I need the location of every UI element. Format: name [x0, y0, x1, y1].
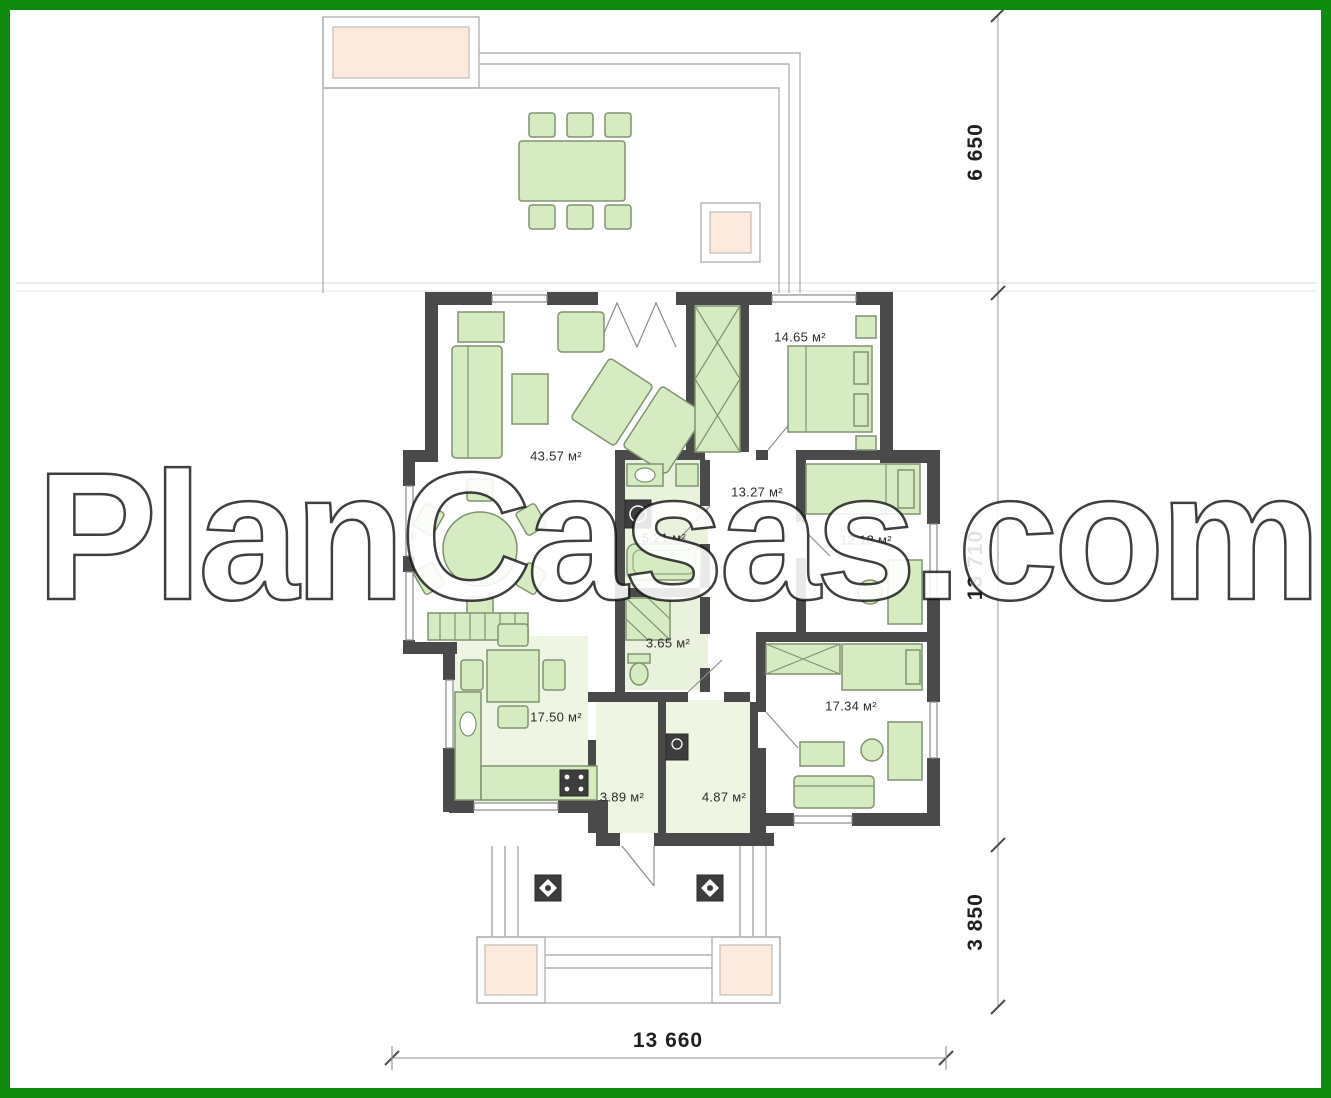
- floor-plan-drawing: [0, 0, 1331, 1098]
- floor-plan-image: 43.57 м² 14.65 м² 13.27 м² 5.21 м² 3.65 …: [0, 0, 1331, 1098]
- terrace: [323, 17, 800, 293]
- porch-ornament-right: [697, 875, 723, 901]
- room-label-bedroom1: 14.65 м²: [774, 330, 826, 345]
- room-label-kitchen: 17.50 м²: [530, 710, 582, 725]
- porch-planter-left: [477, 937, 545, 1003]
- entry-hall-fixtures: [666, 734, 688, 760]
- room-label-living: 43.57 м²: [530, 449, 582, 464]
- terrace-planter: [323, 17, 479, 88]
- terrace-dining-table: [519, 113, 631, 229]
- dim-right-middle: 13 710: [964, 530, 988, 600]
- dim-bottom: 13 660: [633, 1029, 703, 1053]
- roof-projection-lines: [16, 283, 1316, 291]
- room-label-bedroom3: 17.34 м²: [825, 699, 877, 714]
- porch-ornament-left: [535, 875, 561, 901]
- living-wardrobe: [695, 306, 740, 452]
- dim-right-top: 6 650: [964, 123, 988, 181]
- room-label-pantry: 3.89 м²: [600, 790, 644, 805]
- shower: [626, 598, 670, 640]
- room-label-bathroom: 5.21 м²: [642, 531, 686, 546]
- room-label-bedroom2: 12.18 м²: [840, 533, 892, 548]
- room-label-hallway: 13.27 м²: [731, 485, 783, 500]
- porch-planter-right: [712, 937, 780, 1003]
- bedroom3-wardrobe: [766, 644, 840, 674]
- porch: [477, 846, 780, 1003]
- washing-machine: [625, 500, 651, 528]
- toilet: [628, 654, 650, 685]
- room-label-entry: 4.87 м²: [702, 790, 746, 805]
- terrace-column-planter: [701, 203, 760, 262]
- stove: [560, 770, 588, 796]
- room-label-wc: 3.65 м²: [646, 636, 690, 651]
- dim-right-bottom: 3 850: [964, 893, 988, 951]
